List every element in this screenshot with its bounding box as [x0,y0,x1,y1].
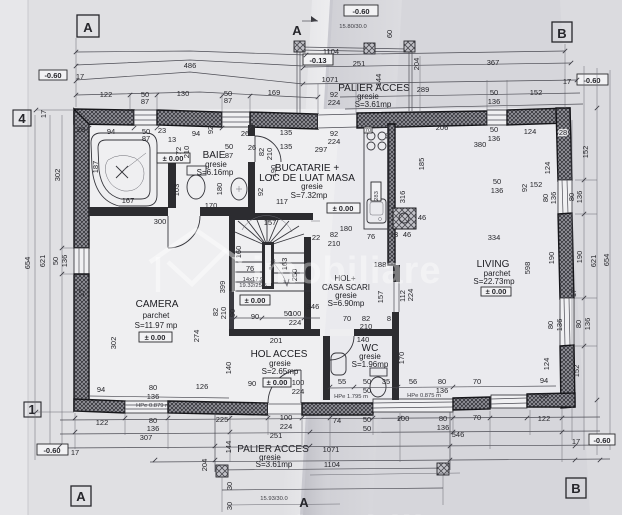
svg-text:204: 204 [412,58,421,71]
svg-text:± 0.00: ± 0.00 [333,204,354,213]
svg-text:136: 136 [437,423,450,432]
svg-text:S=6.16mp: S=6.16mp [197,168,234,177]
svg-text:157: 157 [376,291,385,304]
svg-text:87: 87 [224,96,232,105]
svg-text:100: 100 [280,413,293,422]
svg-text:1071: 1071 [322,75,339,84]
svg-text:144: 144 [374,74,383,87]
svg-text:94: 94 [192,129,200,138]
svg-text:621: 621 [38,255,47,268]
svg-text:283: 283 [374,191,380,201]
svg-text:152: 152 [530,88,543,97]
svg-text:300: 300 [154,217,167,226]
svg-text:302: 302 [53,169,62,182]
svg-text:30: 30 [225,482,234,490]
svg-text:13: 13 [390,230,398,239]
svg-text:190: 190 [547,252,556,265]
svg-text:1: 1 [28,402,35,417]
svg-text:17: 17 [563,77,571,86]
svg-text:35: 35 [382,377,390,386]
svg-text:210: 210 [265,148,274,161]
svg-text:180: 180 [215,183,224,196]
svg-text:169: 169 [268,88,281,97]
svg-text:136: 136 [491,186,504,195]
svg-text:100: 100 [292,378,305,387]
svg-text:124: 124 [524,127,537,136]
svg-text:28: 28 [559,128,567,137]
svg-text:50: 50 [51,257,60,265]
svg-text:8: 8 [387,314,391,323]
svg-text:122: 122 [96,418,109,427]
svg-text:190: 190 [575,251,584,264]
svg-text:50: 50 [363,415,371,424]
svg-text:144: 144 [224,441,233,454]
svg-text:B: B [557,26,566,41]
svg-text:-0.60: -0.60 [583,76,600,85]
svg-text:56: 56 [409,377,417,386]
svg-text:HPe 0.879 m: HPe 0.879 m [136,403,170,409]
svg-text:94: 94 [540,376,548,385]
svg-text:136: 136 [488,97,501,106]
svg-text:135: 135 [280,142,293,151]
svg-text:82: 82 [330,230,338,239]
svg-text:654: 654 [602,254,611,267]
svg-text:imobiliare: imobiliare [252,250,442,292]
svg-text:122: 122 [100,90,113,99]
svg-text:187: 187 [91,161,100,174]
svg-text:334: 334 [488,233,501,242]
svg-text:126: 126 [196,382,209,391]
svg-text:136: 136 [147,424,160,433]
svg-text:185: 185 [417,158,426,171]
svg-text:46: 46 [418,213,426,222]
svg-text:170: 170 [397,352,406,365]
svg-text:346: 346 [307,302,320,311]
svg-text:367: 367 [487,58,500,67]
svg-text:S=7.32mp: S=7.32mp [291,191,328,200]
svg-text:94: 94 [107,127,115,136]
svg-text:parchet: parchet [143,311,170,320]
svg-text:50: 50 [363,424,371,433]
svg-text:90: 90 [251,312,259,321]
svg-text:26: 26 [248,143,256,152]
svg-text:80: 80 [438,377,446,386]
svg-text:S=1.96mp: S=1.96mp [352,360,389,369]
svg-text:50: 50 [493,177,501,186]
svg-text:4: 4 [18,111,26,126]
svg-text:30: 30 [225,502,234,510]
svg-text:224: 224 [328,98,341,107]
svg-text:100: 100 [397,414,410,423]
svg-text:± 0.00: ± 0.00 [245,296,266,305]
svg-text:S=3.61mp: S=3.61mp [355,100,392,109]
svg-text:B: B [571,481,580,496]
svg-text:124: 124 [542,358,551,371]
svg-text:-0.60: -0.60 [43,446,60,455]
svg-text:-0.13: -0.13 [309,56,326,65]
svg-text:206: 206 [436,123,449,132]
svg-text:1104: 1104 [324,460,340,469]
svg-text:80: 80 [149,383,157,392]
svg-text:92: 92 [206,126,215,134]
svg-text:100: 100 [289,309,302,318]
svg-text:26: 26 [241,129,249,138]
svg-text:210: 210 [328,239,341,248]
svg-text:15.80/30.0: 15.80/30.0 [339,24,366,30]
svg-text:50: 50 [490,125,498,134]
svg-text:204: 204 [200,459,209,472]
svg-text:A: A [83,20,93,35]
svg-text:50: 50 [490,88,498,97]
svg-text:74: 74 [333,416,341,425]
svg-text:103: 103 [172,184,181,197]
svg-text:190: 190 [269,165,278,178]
svg-text:76: 76 [367,232,375,241]
svg-text:117: 117 [276,197,288,206]
svg-text:S=2.65mp: S=2.65mp [262,367,299,376]
svg-text:210: 210 [182,146,191,159]
svg-text:654: 654 [23,257,32,270]
svg-text:399: 399 [218,281,227,294]
svg-text:80: 80 [439,414,447,423]
svg-text:46: 46 [403,230,411,239]
svg-text:HPe 0.875 m: HPe 0.875 m [407,393,441,399]
svg-text:225: 225 [216,415,229,424]
svg-text:210: 210 [219,307,228,320]
svg-text:621: 621 [589,255,598,268]
svg-text:13: 13 [168,135,176,144]
svg-text:90: 90 [248,379,256,388]
svg-text:307: 307 [140,433,153,442]
svg-text:70: 70 [473,413,481,422]
svg-text:S=6.90mp: S=6.90mp [328,299,365,308]
svg-text:224: 224 [328,137,341,146]
svg-text:136: 136 [575,191,584,204]
svg-text:130: 130 [177,89,190,98]
svg-text:± 0.00: ± 0.00 [486,287,507,296]
svg-text:A: A [292,23,302,38]
svg-text:15.93/30.0: 15.93/30.0 [260,496,287,502]
svg-text:imobiliare: imobiliare [295,509,485,515]
svg-text:17: 17 [71,448,79,457]
svg-text:224: 224 [292,387,305,396]
svg-text:A: A [76,489,86,504]
svg-text:124: 124 [543,162,552,175]
svg-text:167: 167 [122,196,135,205]
svg-text:60: 60 [385,30,394,38]
svg-text:201: 201 [270,336,283,345]
svg-text:224: 224 [289,318,302,327]
svg-text:70: 70 [473,377,481,386]
svg-text:136: 136 [60,255,69,268]
svg-text:17: 17 [77,289,86,297]
svg-text:92: 92 [520,184,529,192]
svg-text:170: 170 [205,201,218,210]
svg-text:90: 90 [228,309,237,317]
svg-text:gresie: gresie [301,182,323,191]
svg-text:136: 136 [147,392,160,401]
svg-text:210: 210 [360,322,373,331]
svg-text:152: 152 [530,180,543,189]
svg-text:224: 224 [280,422,293,431]
svg-text:-0.60: -0.60 [352,7,369,16]
svg-text:17: 17 [39,110,48,118]
svg-text:50: 50 [363,377,371,386]
svg-text:70: 70 [343,314,351,323]
svg-text:140: 140 [357,335,370,344]
svg-text:50: 50 [225,142,233,151]
svg-text:-0.60: -0.60 [593,436,610,445]
svg-text:289: 289 [417,85,430,94]
svg-text:80: 80 [546,321,555,329]
svg-text:180: 180 [340,224,353,233]
svg-text:70: 70 [365,128,371,134]
svg-text:316: 316 [398,191,407,204]
svg-text:28: 28 [540,391,548,400]
svg-text:13: 13 [386,133,392,139]
svg-text:136: 136 [583,318,592,331]
svg-text:HPe 1.795 m: HPe 1.795 m [334,394,368,400]
svg-text:152: 152 [572,365,581,378]
svg-text:251: 251 [353,59,366,68]
svg-text:17: 17 [569,289,578,297]
svg-text:-0.60: -0.60 [44,71,61,80]
svg-text:598: 598 [523,262,532,275]
svg-text:± 0.00: ± 0.00 [145,333,166,342]
svg-text:87: 87 [142,134,150,143]
svg-text:1071: 1071 [323,445,340,454]
svg-text:122: 122 [538,414,551,423]
svg-text:S=22.73mp: S=22.73mp [473,277,515,286]
svg-text:± 0.00: ± 0.00 [267,378,288,387]
svg-text:23: 23 [158,126,166,135]
svg-text:55: 55 [338,377,346,386]
svg-text:302: 302 [109,337,118,350]
svg-text:136: 136 [555,319,564,332]
svg-text:251: 251 [270,431,283,440]
svg-text:157: 157 [264,218,277,227]
svg-text:94: 94 [97,385,105,394]
svg-text:136: 136 [488,134,501,143]
svg-text:87: 87 [225,151,233,160]
svg-text:274: 274 [192,330,201,343]
svg-text:136: 136 [549,192,558,205]
svg-text:22: 22 [312,233,320,242]
svg-text:28: 28 [77,125,85,134]
svg-text:80: 80 [574,320,583,328]
svg-text:S=11.97 mp: S=11.97 mp [135,321,178,330]
svg-text:297: 297 [315,145,328,154]
svg-text:87: 87 [141,97,149,106]
svg-text:A: A [299,495,309,510]
svg-text:152: 152 [581,146,590,159]
svg-text:CAMERA: CAMERA [136,299,179,310]
svg-text:380: 380 [474,140,487,149]
svg-text:135: 135 [280,128,293,137]
svg-text:92: 92 [256,188,265,196]
svg-text:486: 486 [184,61,197,70]
svg-text:140: 140 [224,362,233,375]
